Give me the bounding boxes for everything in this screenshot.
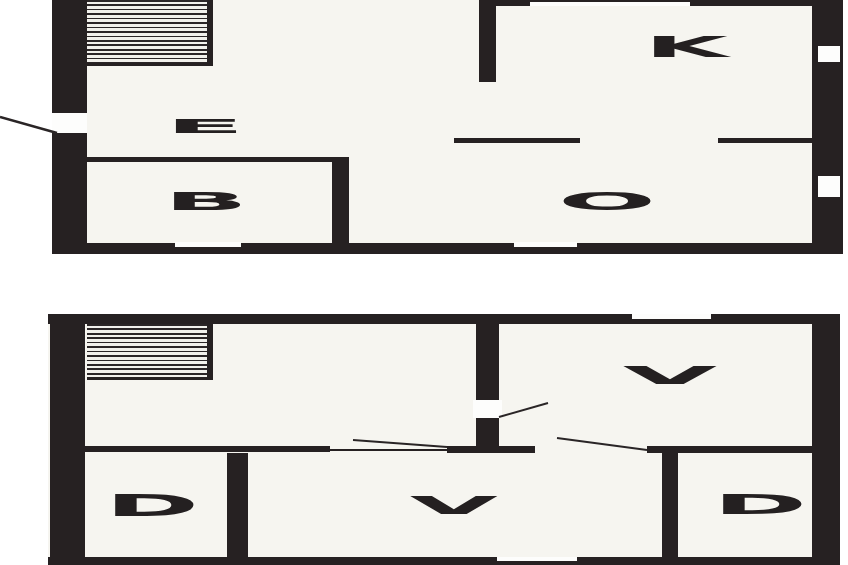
door-opening-v-room bbox=[473, 400, 502, 418]
window-bottom-2 bbox=[514, 242, 577, 247]
staircase-upper-icon bbox=[87, 0, 213, 66]
outer-wall-left-2 bbox=[50, 314, 85, 565]
outer-wall-bottom-2 bbox=[48, 557, 840, 565]
staircase-lower-icon bbox=[87, 324, 213, 380]
room-b-right-wall bbox=[332, 157, 349, 243]
partition-horizontal-a bbox=[85, 446, 330, 452]
window-top bbox=[530, 2, 690, 7]
partition-v-room-lower bbox=[476, 418, 499, 448]
window-right-2 bbox=[818, 176, 840, 197]
outer-wall-left-upper bbox=[52, 0, 87, 113]
window-right-1 bbox=[818, 46, 840, 62]
window-bottom-1 bbox=[175, 242, 241, 247]
floor-plan-image: E B K O V V D D bbox=[0, 0, 848, 565]
partition-horizontal-b bbox=[447, 446, 535, 453]
room-label-d1: D bbox=[105, 491, 200, 521]
outer-wall-top-2 bbox=[48, 314, 840, 324]
partition-horizontal-c bbox=[647, 446, 812, 453]
room-b-top-wall bbox=[87, 157, 332, 162]
window-bottom-3 bbox=[497, 557, 577, 561]
partition-hall-kitchen bbox=[479, 0, 496, 82]
room-d2-left-wall bbox=[662, 453, 678, 558]
partition-mid-right bbox=[718, 138, 812, 143]
room-label-k: K bbox=[644, 33, 728, 61]
room-label-e: E bbox=[165, 116, 244, 136]
room-d1-right-wall bbox=[227, 453, 248, 558]
room-label-v1: V bbox=[623, 363, 717, 388]
room-label-v2: V bbox=[410, 494, 498, 518]
door-threshold-line bbox=[330, 449, 447, 451]
outer-wall-right-2 bbox=[812, 314, 840, 565]
partition-mid-left bbox=[454, 138, 580, 143]
partition-v-room-upper bbox=[476, 324, 499, 400]
room-label-b: B bbox=[164, 189, 248, 214]
room-label-d2: D bbox=[713, 492, 808, 518]
entrance-door-swing bbox=[0, 117, 57, 133]
room-label-o: O bbox=[558, 188, 657, 214]
entrance-door-opening bbox=[52, 113, 87, 133]
outer-wall-top-b bbox=[690, 0, 813, 6]
outer-wall-left-lower bbox=[52, 133, 87, 243]
outer-wall-bottom bbox=[52, 243, 843, 254]
outer-wall-right bbox=[812, 0, 843, 254]
window-top-3 bbox=[632, 314, 711, 319]
